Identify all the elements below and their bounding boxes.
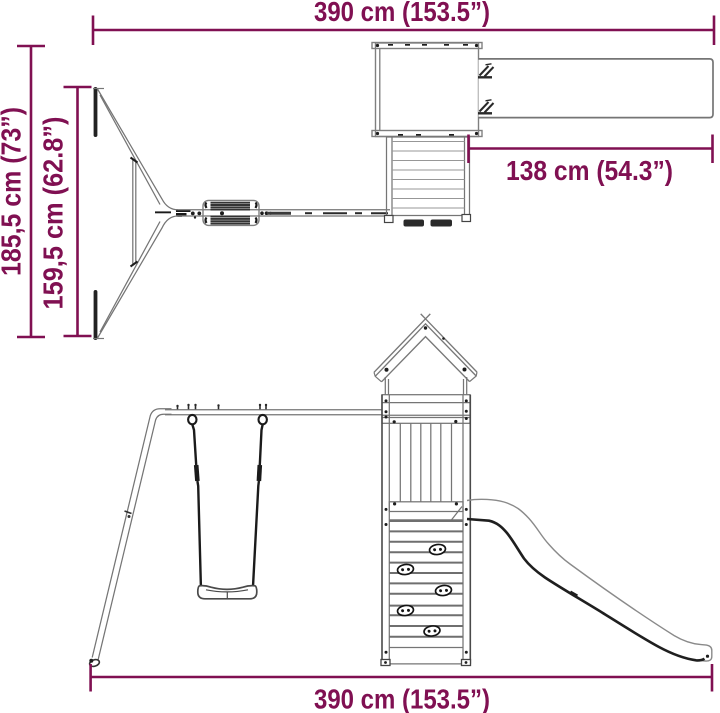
svg-text:138 cm (54.3”): 138 cm (54.3”)	[506, 155, 673, 186]
svg-text:390 cm (153.5”): 390 cm (153.5”)	[314, 684, 490, 713]
svg-text:390 cm (153.5”): 390 cm (153.5”)	[314, 0, 490, 27]
svg-text:159,5 cm (62.8”): 159,5 cm (62.8”)	[38, 117, 69, 310]
svg-text:185,5 cm (73”): 185,5 cm (73”)	[0, 107, 27, 276]
